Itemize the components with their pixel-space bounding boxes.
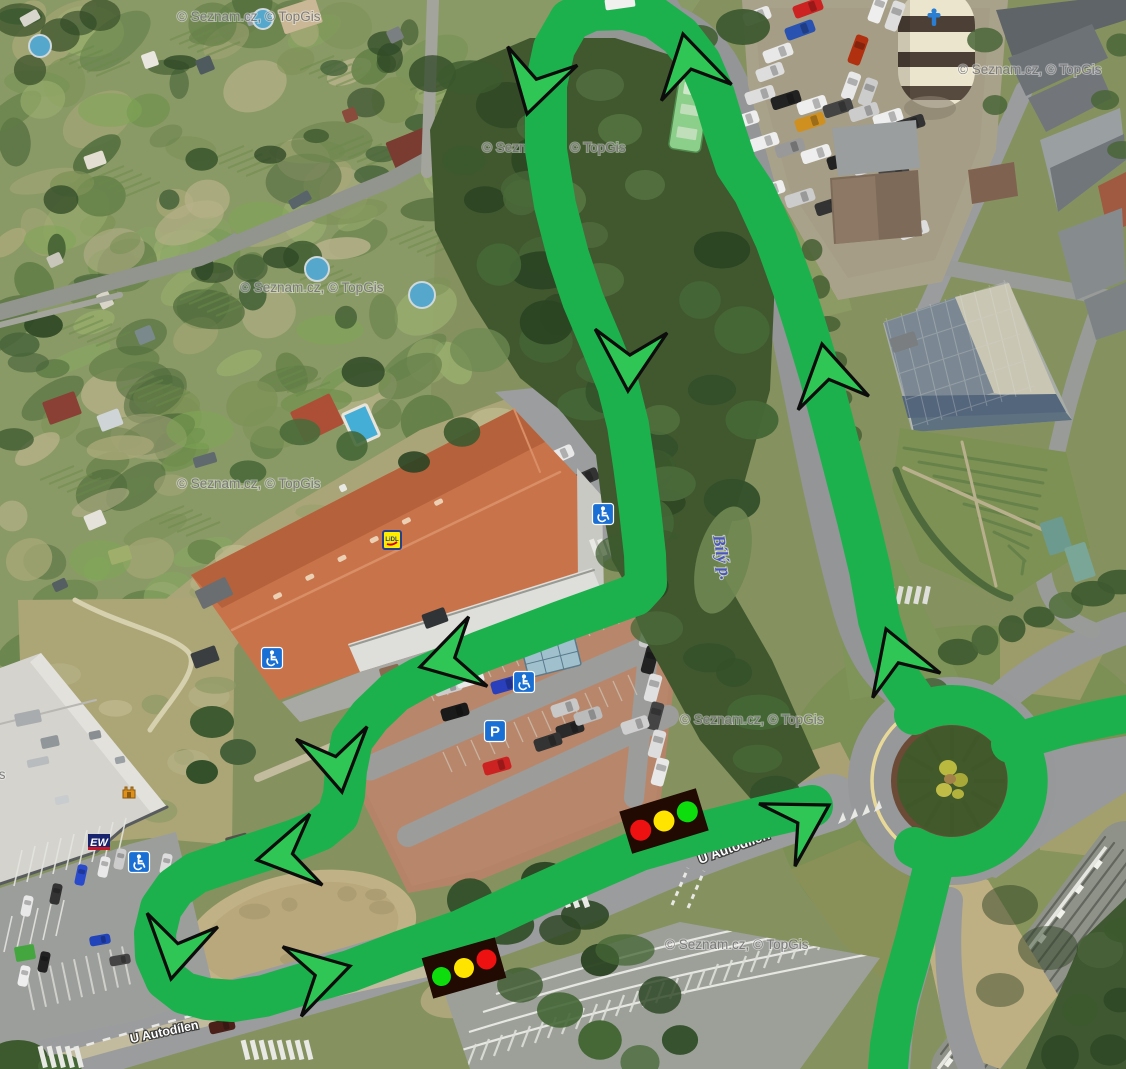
svg-text:© Seznam.cz, © TopGis: © Seznam.cz, © TopGis	[665, 937, 809, 952]
svg-text:© TopGis: © TopGis	[0, 767, 6, 782]
svg-text:© Seznam.cz, © TopGis: © Seznam.cz, © TopGis	[680, 712, 824, 727]
svg-text:LiDL: LiDL	[385, 537, 399, 543]
svg-text:© Seznam.cz, © TopGis: © Seznam.cz, © TopGis	[177, 476, 321, 491]
svg-text:© Seznam.cz, © TopGis: © Seznam.cz, © TopGis	[177, 9, 321, 24]
svg-text:© Seznam.cz, © TopGis: © Seznam.cz, © TopGis	[958, 62, 1102, 77]
svg-text:© Seznam.cz, © TopGis: © Seznam.cz, © TopGis	[240, 280, 384, 295]
svg-text:P: P	[490, 724, 500, 741]
